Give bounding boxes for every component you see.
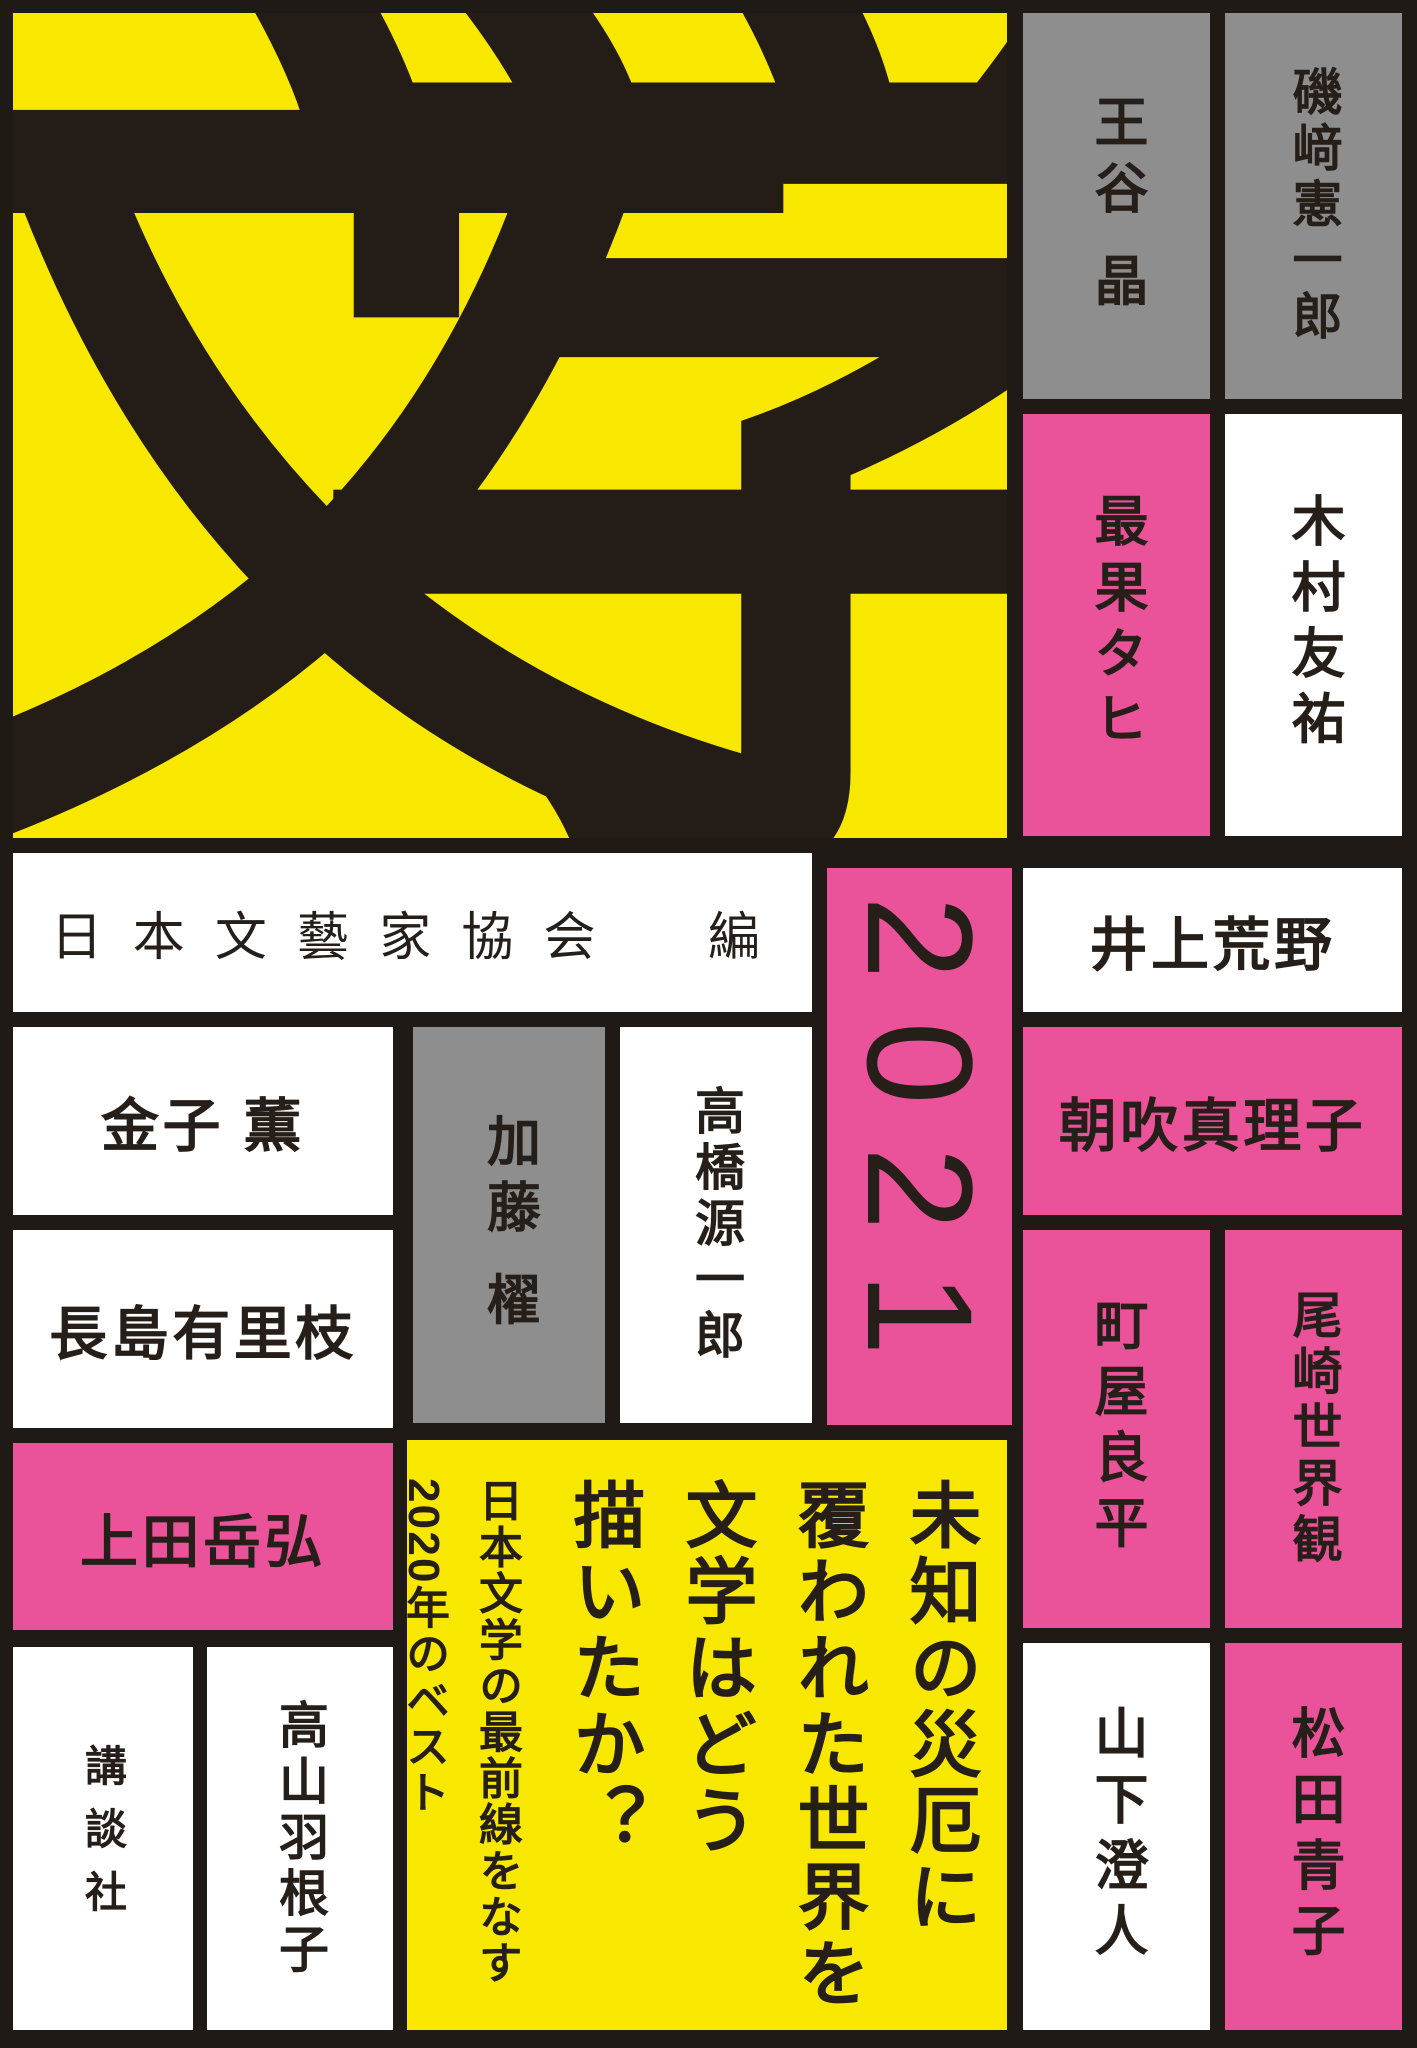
author-block-kaneko: 金子 薫 [13, 1027, 393, 1215]
author-block-kimura: 木村友祐 [1225, 414, 1402, 836]
editor-block: 日本文藝家協会 編 [13, 853, 812, 1012]
author-name: 最果タヒ [1077, 493, 1156, 757]
catchcopy-sub-2: 2020年のベスト [407, 1478, 455, 2030]
author-block-isozaki: 磯﨑憲一郎 [1225, 13, 1402, 399]
author-name: 井上荒野 [1090, 898, 1336, 982]
author-name: 松田青子 [1274, 1705, 1353, 1969]
author-block-saihate: 最果タヒ [1023, 414, 1210, 836]
author-name: 尾崎世界観 [1278, 1289, 1350, 1569]
author-name: 町屋良平 [1077, 1297, 1156, 1561]
catchcopy-columns: 未知の災厄に 覆われた世界を 文学はどう 描いたか？ 日本文学の最前線をなす 2… [407, 1478, 991, 2030]
catchcopy-line-4: 描いたか？ [550, 1478, 655, 2030]
author-name: 高橋源一郎 [680, 1085, 752, 1365]
title-character-gaku: 学 [288, 13, 1007, 838]
title-block: 文 学 [13, 13, 1007, 838]
catchcopy-block: 未知の災厄に 覆われた世界を 文学はどう 描いたか？ 日本文学の最前線をなす 2… [407, 1440, 1007, 2030]
author-name: 王谷 晶 [1077, 94, 1156, 319]
year-text: 2021 [833, 896, 1006, 1398]
publisher-name: 講談社 [73, 1744, 134, 1933]
publisher-block: 講談社 [13, 1647, 193, 2030]
author-block-nagashima: 長島有里枝 [13, 1230, 393, 1428]
author-block-otani: 王谷 晶 [1023, 13, 1210, 399]
author-name: 高山羽根子 [264, 1699, 336, 1979]
author-name: 金子 薫 [101, 1079, 305, 1163]
author-block-ozaki: 尾崎世界観 [1225, 1230, 1402, 1628]
author-name: 朝吹真理子 [1059, 1079, 1366, 1163]
author-block-kato: 加藤 櫂 [413, 1027, 605, 1423]
catchcopy-line-3: 文学はどう [662, 1478, 767, 2030]
author-block-takayama: 高山羽根子 [207, 1647, 393, 2030]
author-block-inoue: 井上荒野 [1023, 868, 1402, 1012]
author-block-takahashi: 高橋源一郎 [620, 1027, 812, 1423]
author-name: 木村友祐 [1274, 493, 1353, 757]
editor-name: 日本文藝家協会 編 [35, 895, 790, 970]
author-block-asabuki: 朝吹真理子 [1023, 1027, 1402, 1215]
catchcopy-line-1: 未知の災厄に [886, 1478, 991, 2030]
catchcopy-sub-1: 日本文学の最前線をなす [464, 1478, 528, 2030]
author-name: 磯﨑憲一郎 [1278, 66, 1350, 346]
author-name: 長島有里枝 [49, 1287, 356, 1371]
author-block-matsuda: 松田青子 [1225, 1643, 1402, 2030]
author-block-yamashita: 山下澄人 [1023, 1643, 1210, 2030]
author-name: 山下澄人 [1077, 1705, 1156, 1969]
author-block-machiya: 町屋良平 [1023, 1230, 1210, 1628]
catchcopy-line-2: 覆われた世界を [774, 1478, 879, 2030]
author-block-ueda: 上田岳弘 [13, 1443, 393, 1630]
year-block: 2021 [827, 868, 1012, 1425]
book-cover: 文 学 王谷 晶 磯﨑憲一郎 最果タヒ 木村友祐 日本文藝家協会 編 2021 … [0, 0, 1417, 2048]
author-name: 加藤 櫂 [470, 1113, 549, 1338]
author-name: 上田岳弘 [80, 1495, 326, 1579]
